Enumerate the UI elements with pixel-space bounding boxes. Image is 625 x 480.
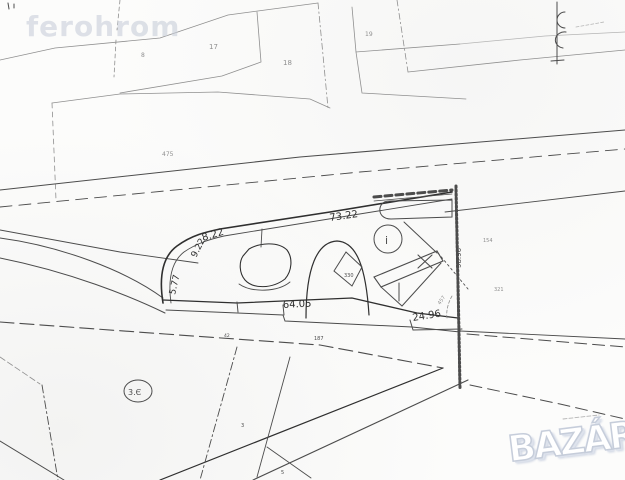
parcel-number: 19	[365, 31, 373, 38]
handwritten-note: 457	[437, 295, 447, 306]
parcel-number: 3	[241, 423, 244, 429]
parcel-boundary-right	[445, 191, 625, 212]
scan-speck	[8, 3, 14, 9]
top-parcel-boundary	[352, 7, 460, 52]
top-parcel-boundary	[408, 50, 625, 72]
road-edge	[0, 130, 625, 190]
dimension: 64.05	[283, 299, 312, 311]
structure-outline	[381, 263, 441, 306]
top-parcel-divider	[52, 103, 56, 200]
plot-boundary-outer	[161, 192, 452, 303]
top-parcel-boundary	[52, 92, 330, 108]
road-edge	[160, 368, 443, 480]
x-mark	[418, 255, 432, 268]
road-number: 42	[224, 333, 230, 339]
boundary-dashdot	[42, 385, 58, 480]
pond-outline	[240, 244, 291, 287]
boundary-dashdot	[438, 253, 468, 289]
road-edge	[0, 238, 163, 298]
info-symbol: i	[385, 234, 388, 247]
road-centerline	[0, 149, 625, 207]
parcel-number: 475	[162, 151, 174, 158]
arch-outline	[306, 241, 369, 318]
structure-outline	[374, 251, 443, 287]
boundary-dashdot	[200, 347, 237, 480]
building-number: 330	[344, 273, 354, 279]
dimension: 24.96	[412, 309, 442, 324]
circled-number: 3.Є	[128, 388, 142, 397]
top-parcel-boundary	[460, 32, 625, 44]
parcel-number: 18	[283, 59, 292, 67]
parcel-number: 154	[483, 238, 493, 244]
parcel-number: 5	[281, 470, 284, 476]
leader-line	[404, 222, 437, 253]
parcel-boundary-right	[460, 331, 625, 339]
scan-scribble	[576, 22, 604, 27]
dimension: 98.96	[455, 247, 463, 268]
road-dashed	[467, 334, 625, 347]
utility-pole-symbol	[551, 60, 564, 61]
road-number: 187	[314, 336, 324, 342]
road-edge	[0, 258, 165, 313]
parcel-boundary	[257, 357, 290, 477]
top-parcel-divider	[318, 3, 328, 108]
parcel-boundary	[267, 447, 311, 478]
road-edge	[0, 230, 198, 263]
top-parcel-divider	[114, 40, 116, 77]
boundary-dashed	[0, 357, 40, 384]
cadastral-map-svg: 817181947573.228.229.225.7764.0524.9698.…	[0, 0, 625, 480]
boundary-dashed	[447, 296, 452, 318]
parcel-number: 321	[494, 287, 504, 293]
road-dashed	[470, 385, 625, 419]
hatched-boundary	[456, 186, 460, 388]
road-dashed	[0, 322, 443, 368]
top-parcel-divider	[397, 0, 408, 72]
parcel-number: 8	[141, 52, 145, 59]
ferohrom-watermark: ferohrom	[26, 10, 180, 43]
parcel-number: 17	[209, 43, 218, 51]
scanned-cadastral-plan: 817181947573.228.229.225.7764.0524.9698.…	[0, 0, 625, 480]
dimension: 9.22	[190, 237, 208, 259]
top-parcel-boundary	[356, 52, 466, 99]
